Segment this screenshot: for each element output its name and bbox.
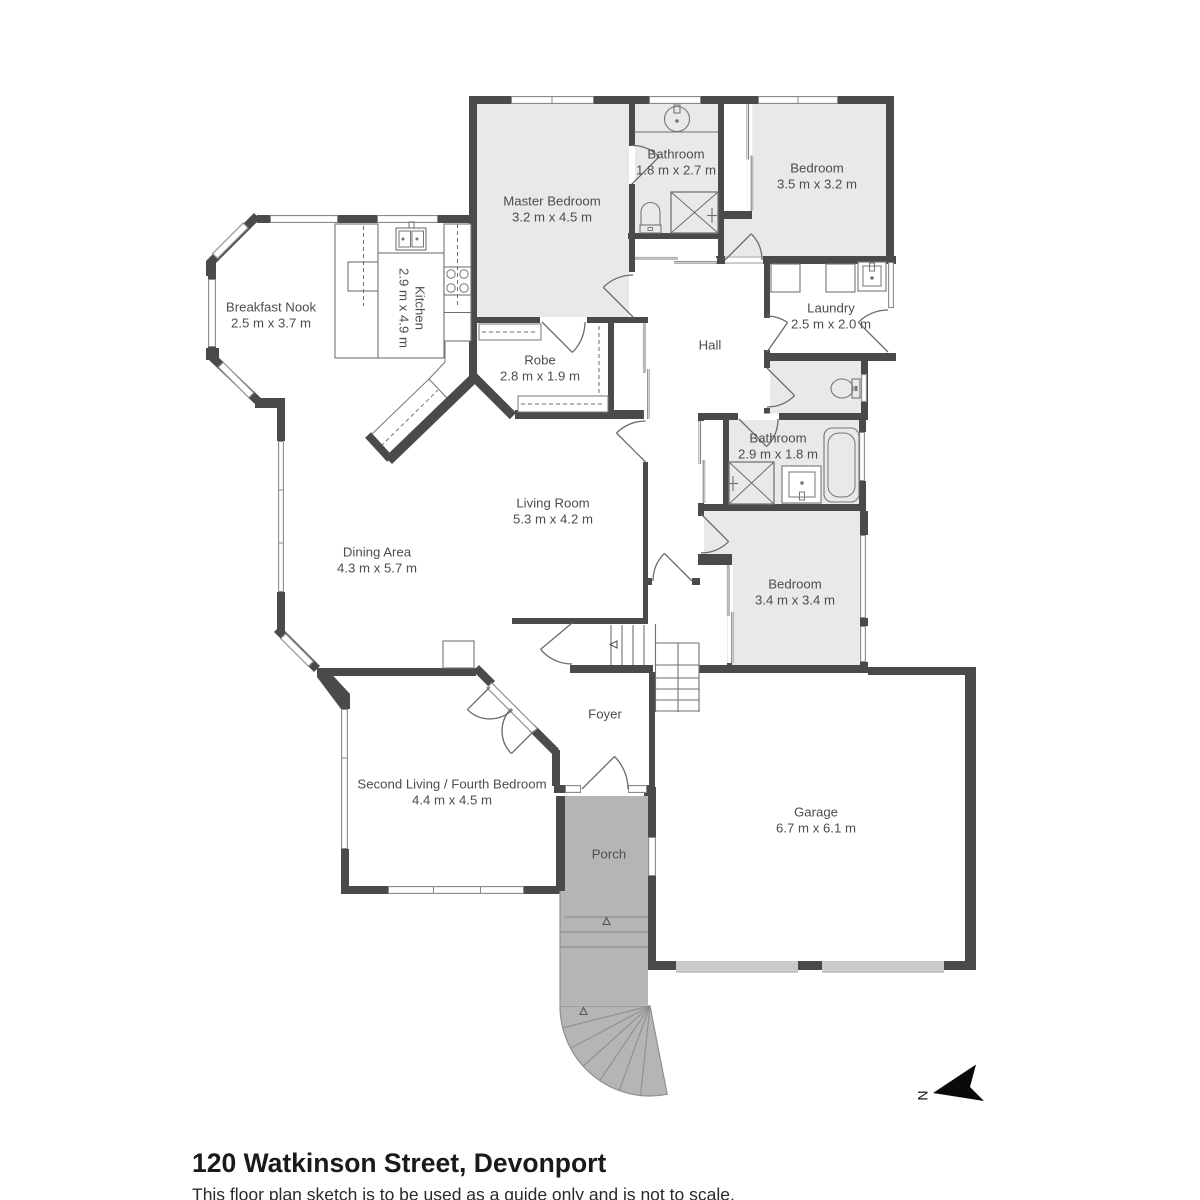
svg-text:2.5 m x 3.7 m: 2.5 m x 3.7 m xyxy=(231,315,311,330)
svg-text:Living Room: Living Room xyxy=(516,496,589,511)
svg-text:Bedroom: Bedroom xyxy=(790,161,844,176)
svg-text:120 Watkinson Street, Devonpor: 120 Watkinson Street, Devonport xyxy=(192,1148,606,1178)
svg-text:Bathroom: Bathroom xyxy=(647,147,704,162)
svg-text:3.2 m x 4.5 m: 3.2 m x 4.5 m xyxy=(512,209,592,224)
svg-text:2.5 m x 2.0 m: 2.5 m x 2.0 m xyxy=(791,316,871,331)
svg-text:Bedroom: Bedroom xyxy=(768,577,822,592)
svg-text:Foyer: Foyer xyxy=(588,706,622,721)
svg-text:Hall: Hall xyxy=(699,337,722,352)
svg-text:Second Living / Fourth Bedroom: Second Living / Fourth Bedroom xyxy=(357,777,546,792)
svg-text:2.9 m x 4.9 m: 2.9 m x 4.9 m xyxy=(396,268,411,348)
svg-text:Breakfast Nook: Breakfast Nook xyxy=(226,300,317,315)
svg-text:Laundry: Laundry xyxy=(807,301,855,316)
svg-text:Garage: Garage xyxy=(794,805,838,820)
svg-text:Master Bedroom: Master Bedroom xyxy=(503,194,600,209)
svg-text:Kitchen: Kitchen xyxy=(413,286,428,330)
svg-text:Porch: Porch xyxy=(592,846,626,861)
svg-text:6.7 m x 6.1 m: 6.7 m x 6.1 m xyxy=(776,820,856,835)
svg-text:Bathroom: Bathroom xyxy=(749,431,806,446)
svg-text:Robe: Robe xyxy=(524,353,556,368)
svg-text:2.9 m x 1.8 m: 2.9 m x 1.8 m xyxy=(738,446,818,461)
svg-text:Dining Area: Dining Area xyxy=(343,545,412,560)
svg-text:1.8 m x 2.7 m: 1.8 m x 2.7 m xyxy=(636,162,716,177)
svg-text:2.8 m x 1.9 m: 2.8 m x 1.9 m xyxy=(500,368,580,383)
svg-text:N: N xyxy=(915,1090,931,1100)
svg-text:5.3 m x 4.2 m: 5.3 m x 4.2 m xyxy=(513,511,593,526)
svg-text:3.5 m x 3.2 m: 3.5 m x 3.2 m xyxy=(777,176,857,191)
svg-text:4.4 m x 4.5 m: 4.4 m x 4.5 m xyxy=(412,792,492,807)
svg-text:This floor plan sketch is to b: This floor plan sketch is to be used as … xyxy=(192,1185,735,1200)
svg-text:4.3 m x 5.7 m: 4.3 m x 5.7 m xyxy=(337,560,417,575)
svg-text:3.4 m x 3.4 m: 3.4 m x 3.4 m xyxy=(755,592,835,607)
